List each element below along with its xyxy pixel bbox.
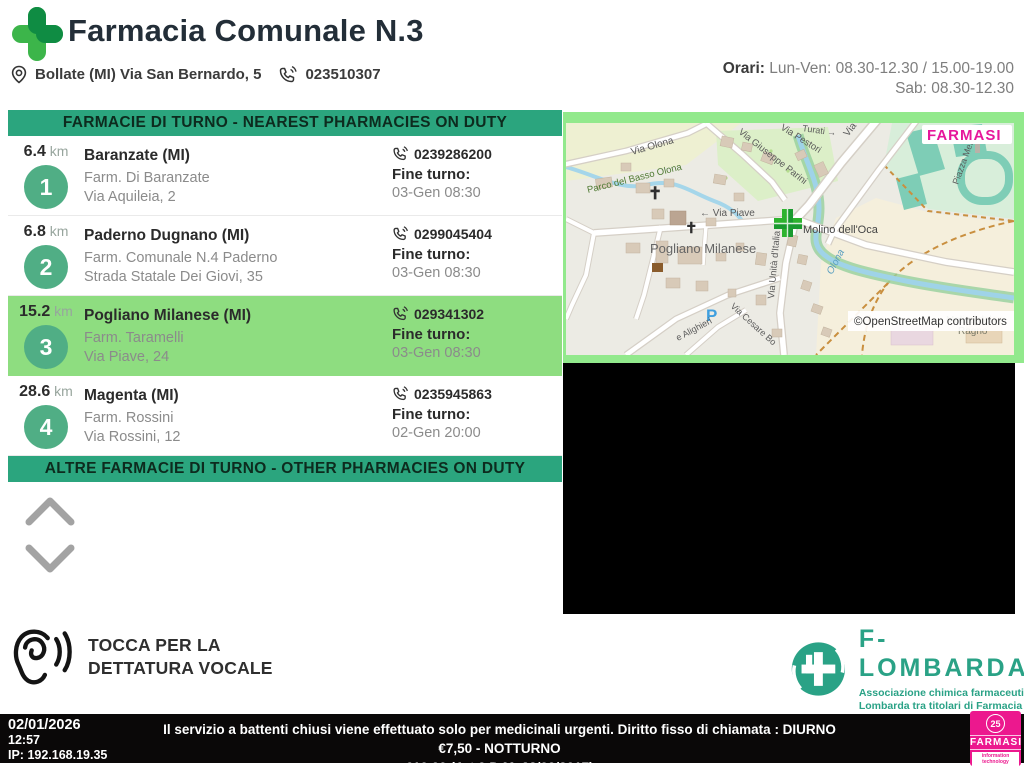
other-pharmacies-banner[interactable]: ALTRE FARMACIE DI TURNO - OTHER PHARMACI… xyxy=(8,456,562,482)
pharmacy-city: Paderno Dugnano (MI) xyxy=(84,227,392,245)
pharmacy-street: Strada Statale Dei Giovi, 35 xyxy=(84,268,392,287)
farmasi-brand-sub: information technology xyxy=(972,752,1019,767)
pharmacy-cross-logo xyxy=(10,5,65,63)
map: ✝ ✝ P P Via Olona Parco del Basso Olona … xyxy=(566,123,1014,355)
distance-column: 15.2 km 3 xyxy=(8,303,84,369)
voice-line2: DETTATURA VOCALE xyxy=(88,657,273,680)
duty-phone: 0239286200 xyxy=(414,146,492,162)
street-label: ← Via Piave xyxy=(700,208,755,219)
flombarda-sub1: Associazione chimica farmaceutica xyxy=(859,687,1024,700)
place-label: Molino dell'Oca xyxy=(803,224,879,236)
distance-column: 28.6 km 4 xyxy=(8,383,84,449)
pharmacy-info: Paderno Dugnano (MI) Farm. Comunale N.4 … xyxy=(84,223,392,289)
phone-icon xyxy=(392,225,409,242)
footer-time: 12:57 xyxy=(8,733,107,748)
duty-phone: 0235945863 xyxy=(414,386,492,402)
farmasi-map-logo: FARMASI xyxy=(927,127,1002,144)
rank-badge: 4 xyxy=(24,405,68,449)
pharmacies-panel: FARMACIE DI TURNO - NEAREST PHARMACIES O… xyxy=(8,110,562,576)
fine-turno-value: 03-Gen 08:30 xyxy=(392,345,562,361)
pharmacy-street: Via Piave, 24 xyxy=(84,348,392,367)
distance-value: 28.6 xyxy=(19,383,50,400)
orari-saturday: Sab: 08.30-12.30 xyxy=(723,79,1014,99)
distance-value: 15.2 xyxy=(19,303,50,320)
location-pin-icon xyxy=(10,65,28,84)
fine-turno-value: 02-Gen 20:00 xyxy=(392,425,562,441)
rank-badge: 3 xyxy=(24,325,68,369)
church-icon: ✝ xyxy=(648,184,662,203)
pharmacy-address-row: Bollate (MI) Via San Bernardo, 5 0235103… xyxy=(10,65,381,84)
pharmacy-info: Baranzate (MI) Farm. Di Baranzate Via Aq… xyxy=(84,143,392,209)
pharmacy-row[interactable]: 28.6 km 4 Magenta (MI) Farm. Rossini Via… xyxy=(8,376,562,456)
footer-system-info: 02/01/2026 12:57 IP: 192.168.19.35 xyxy=(8,718,107,763)
duty-info: 0235945863 Fine turno: 02-Gen 20:00 xyxy=(392,383,562,449)
map-attribution: ©OpenStreetMap contributors xyxy=(854,316,1007,328)
footer-bar: 02/01/2026 12:57 IP: 192.168.19.35 Il se… xyxy=(0,714,1024,763)
pharmacy-name: Farm. Comunale N.4 Paderno xyxy=(84,249,392,268)
farmasi-footer-logo: 25 FARMASI information technology xyxy=(970,711,1021,766)
pharmacy-street: Via Aquileia, 2 xyxy=(84,188,392,207)
pharmacy-street: Via Rossini, 12 xyxy=(84,428,392,447)
flombarda-name: F-LOMBARDA xyxy=(859,625,1024,683)
duty-info: 0299045404 Fine turno: 03-Gen 08:30 xyxy=(392,223,562,289)
orari-weekdays: Lun-Ven: 08.30-12.30 / 15.00-19.00 xyxy=(765,60,1014,77)
town-label: Pogliano Milanese xyxy=(650,241,756,256)
pharmacy-city: Baranzate (MI) xyxy=(84,147,392,165)
page-title: Farmacia Comunale N.3 xyxy=(68,13,424,49)
distance-unit: km xyxy=(50,303,73,319)
orari-label: Orari: xyxy=(723,60,765,77)
pharmacy-phone: 023510307 xyxy=(305,66,380,83)
scroll-up-button[interactable] xyxy=(24,494,76,528)
distance-unit: km xyxy=(50,383,73,399)
footer-ip: IP: 192.168.19.35 xyxy=(8,748,107,763)
footer-notice: Il servizio a battenti chiusi viene effe… xyxy=(150,720,849,777)
pharmacy-name: Farm. Taramelli xyxy=(84,329,392,348)
footer-notice-line1: Il servizio a battenti chiusi viene effe… xyxy=(150,720,849,758)
pharmacy-row[interactable]: 6.8 km 2 Paderno Dugnano (MI) Farm. Comu… xyxy=(8,216,562,296)
video-placeholder xyxy=(563,363,1015,614)
fine-turno-label: Fine turno: xyxy=(392,166,562,183)
map-frame: ✝ ✝ P P Via Olona Parco del Basso Olona … xyxy=(563,112,1024,363)
phone-icon xyxy=(392,305,409,322)
pharmacy-row[interactable]: 6.4 km 1 Baranzate (MI) Farm. Di Baranza… xyxy=(8,136,562,216)
scroll-down-button[interactable] xyxy=(24,542,76,576)
duty-info: 0239286200 Fine turno: 03-Gen 08:30 xyxy=(392,143,562,209)
pharmacy-name: Farm. Rossini xyxy=(84,409,392,428)
opening-hours: Orari: Lun-Ven: 08.30-12.30 / 15.00-19.0… xyxy=(723,59,1014,99)
phone-icon xyxy=(392,145,409,162)
pharmacy-info: Magenta (MI) Farm. Rossini Via Rossini, … xyxy=(84,383,392,449)
rank-badge: 2 xyxy=(24,245,68,289)
fine-turno-value: 03-Gen 08:30 xyxy=(392,185,562,201)
farmasi-25-badge: 25 xyxy=(986,714,1005,733)
voice-line1: TOCCA PER LA xyxy=(88,634,273,657)
duty-phone: 029341302 xyxy=(414,306,484,322)
pharmacy-city: Magenta (MI) xyxy=(84,387,392,405)
phone-icon xyxy=(278,65,298,84)
rank-badge: 1 xyxy=(24,165,68,209)
fine-turno-label: Fine turno: xyxy=(392,406,562,423)
nearest-pharmacies-banner: FARMACIE DI TURNO - NEAREST PHARMACIES O… xyxy=(8,110,562,136)
pharmacy-info: Pogliano Milanese (MI) Farm. Taramelli V… xyxy=(84,303,392,369)
farmasi-brand-name: FARMASI xyxy=(970,735,1021,750)
distance-value: 6.8 xyxy=(24,223,46,240)
distance-column: 6.8 km 2 xyxy=(8,223,84,289)
pharmacy-name: Farm. Di Baranzate xyxy=(84,169,392,188)
library-icon xyxy=(652,263,663,272)
distance-unit: km xyxy=(46,143,69,159)
distance-column: 6.4 km 1 xyxy=(8,143,84,209)
ear-icon xyxy=(10,624,76,690)
flombarda-icon xyxy=(790,637,847,701)
flombarda-logo-block: F-LOMBARDA Associazione chimica farmaceu… xyxy=(790,625,1024,713)
duty-info: 029341302 Fine turno: 03-Gen 08:30 xyxy=(392,303,562,369)
fine-turno-label: Fine turno: xyxy=(392,326,562,343)
footer-date: 02/01/2026 xyxy=(8,718,107,733)
fine-turno-value: 03-Gen 08:30 xyxy=(392,265,562,281)
fine-turno-label: Fine turno: xyxy=(392,246,562,263)
pharmacy-row[interactable]: 15.2 km 3 Pogliano Milanese (MI) Farm. T… xyxy=(8,296,562,376)
distance-value: 6.4 xyxy=(24,143,46,160)
pharmacy-list: 6.4 km 1 Baranzate (MI) Farm. Di Baranza… xyxy=(8,136,562,456)
distance-unit: km xyxy=(46,223,69,239)
phone-icon xyxy=(392,385,409,402)
church-icon: ✝ xyxy=(685,220,698,237)
duty-phone: 0299045404 xyxy=(414,226,492,242)
voice-dictation-button[interactable]: TOCCA PER LA DETTATURA VOCALE xyxy=(10,624,273,690)
pharmacy-city: Pogliano Milanese (MI) xyxy=(84,307,392,325)
pharmacy-address: Bollate (MI) Via San Bernardo, 5 xyxy=(35,66,261,83)
